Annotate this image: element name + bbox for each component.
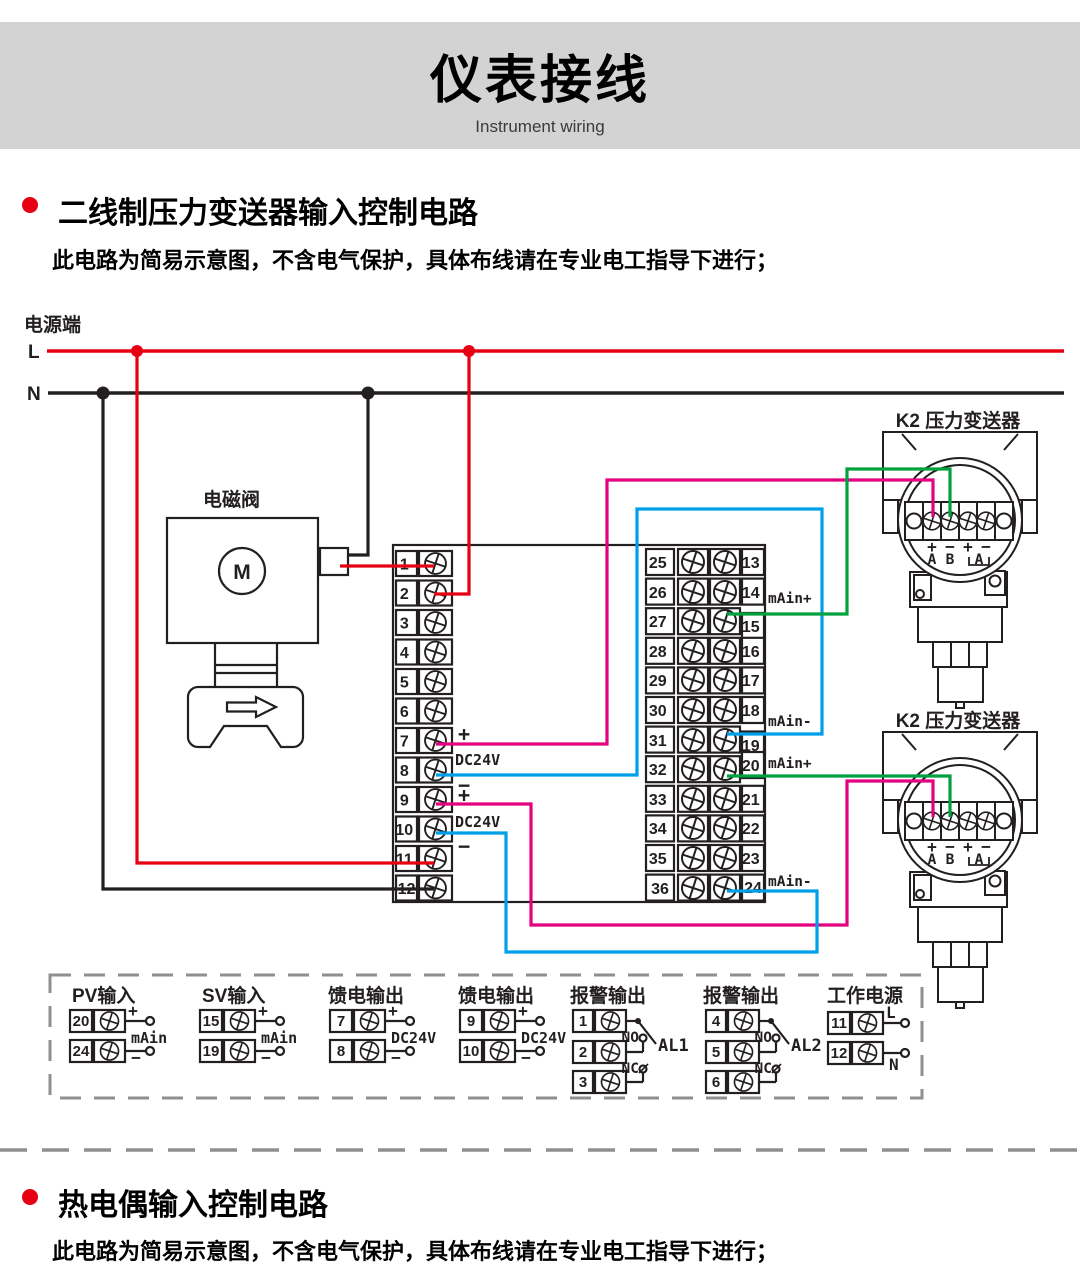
legend-al1-nc: NC — [622, 1061, 639, 1077]
line-l-label: L — [28, 342, 40, 363]
legend-sv-plus: + — [258, 1001, 268, 1020]
transmitter-1-label: K2 压力变送器 — [896, 409, 1022, 432]
terminal-strip-left: 1 2 3 4 5 6 7 8 9 10 11 12 + DC24V − + D… — [395, 550, 500, 901]
legend-al2-nc: NC — [755, 1061, 772, 1077]
pressure-transmitter-2: K2 压力变送器 + − + − A B A — [883, 709, 1037, 1008]
legend-al2-name: AL2 — [791, 1036, 822, 1056]
legend-feed2-minus: − — [521, 1048, 531, 1067]
wire-n-to-solenoid — [348, 393, 368, 555]
legend-sv-minus: − — [261, 1048, 271, 1067]
signal-main-plus-2-label: mAin+ — [768, 756, 812, 772]
legend-feed1-plus: + — [388, 1001, 398, 1020]
t1-sign-plus-2: + — [963, 537, 973, 556]
pressure-transmitter-1: K2 压力变送器 + − + − A B A — [883, 409, 1037, 708]
t2-pin-a: A — [928, 852, 937, 868]
legend-sv-title: SV输入 — [202, 984, 265, 1007]
terminal-strip-middle: 25 26 27 28 29 30 31 32 33 34 35 36 13 1… — [646, 548, 812, 902]
svg-text:1519: 1519 — [203, 1013, 220, 1060]
legend-feed2-plus: + — [518, 1001, 528, 1020]
legend-al2-no: NO — [755, 1030, 773, 1046]
t1-pin-b: B — [946, 552, 955, 568]
legend-alarm-output-1: 报警输出 123 NO NC AL1 — [570, 984, 689, 1093]
power-rails: 电源端 L N — [24, 313, 1064, 405]
legend-pv-minus: − — [131, 1048, 141, 1067]
legend-working-power: 工作电源 1112 L N — [827, 984, 909, 1074]
legend-sv-main: mAin — [261, 1029, 297, 1047]
legend-pv-input: PV输入 2024 + mAin − — [70, 984, 167, 1067]
solenoid-label: 电磁阀 — [203, 488, 260, 511]
legend-al2-title: 报警输出 — [703, 984, 779, 1007]
transmitter-2-label: K2 压力变送器 — [896, 709, 1022, 732]
svg-text:456: 456 — [712, 1013, 721, 1091]
legend-alarm-output-2: 报警输出 456 NO NC AL2 — [703, 984, 822, 1093]
wires — [103, 351, 950, 952]
signal-main-minus-2-label: mAin- — [768, 874, 812, 890]
signal-main-minus-1-label: mAin- — [768, 714, 812, 730]
dc24v-2-label: DC24V — [455, 813, 500, 831]
svg-text:1112: 1112 — [831, 1015, 848, 1062]
dc24v-1-label: DC24V — [455, 751, 500, 769]
svg-text:78: 78 — [337, 1013, 345, 1060]
legend-al1-no: NO — [622, 1030, 640, 1046]
t2-sign-plus-2: + — [963, 837, 973, 856]
signal-main-plus-1-label: mAin+ — [768, 591, 812, 607]
t1-pin-a: A — [928, 552, 937, 568]
legend-pv-main: mAin — [131, 1029, 167, 1047]
legend-feed2-dc24v: DC24V — [521, 1029, 566, 1047]
legend-feed1-dc24v: DC24V — [391, 1029, 436, 1047]
legend-pv-title: PV输入 — [72, 984, 135, 1007]
legend-al1-name: AL1 — [658, 1036, 689, 1056]
legend-sv-input: SV输入 1519 + mAin − — [200, 984, 297, 1067]
legend-power-l: L — [886, 1003, 896, 1022]
legend-pv-plus: + — [128, 1001, 138, 1020]
motor-label: M — [233, 561, 251, 584]
legend-feed-output-1: 馈电输出 78 + DC24V − — [328, 984, 436, 1067]
svg-text:123: 123 — [579, 1013, 587, 1091]
t2-pin-b: B — [946, 852, 955, 868]
line-n-label: N — [27, 384, 41, 405]
solenoid-valve: M 电磁阀 — [167, 488, 348, 747]
dc24v-2-minus-label: − — [458, 834, 470, 858]
page: 仪表接线 Instrument wiring 二线制压力变送器输入控制电路 此电… — [0, 0, 1080, 1278]
solenoid-connector — [320, 548, 348, 575]
legend-feed1-minus: − — [391, 1048, 401, 1067]
power-label: 电源端 — [24, 313, 81, 336]
wiring-diagram: 1 2 3 4 5 6 7 8 9 10 11 12 + DC24V − + D… — [0, 0, 1080, 1278]
legend-feed-output-2: 馈电输出 910 + DC24V − — [458, 984, 566, 1067]
legend-panel: PV输入 2024 + mAin − SV输入 1519 — [50, 975, 922, 1098]
svg-text:2024: 2024 — [73, 1013, 90, 1060]
legend-power-n: N — [889, 1055, 899, 1074]
legend-al1-title: 报警输出 — [570, 984, 646, 1007]
